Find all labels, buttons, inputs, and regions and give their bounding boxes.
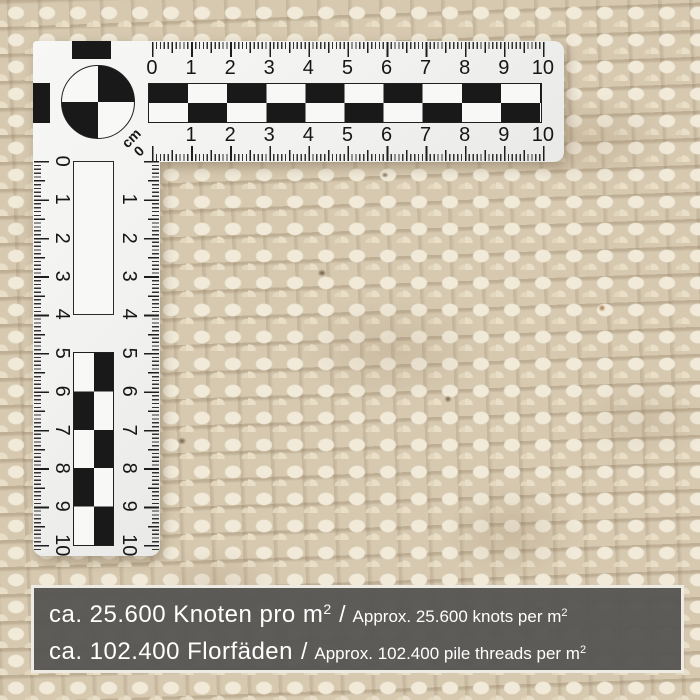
scale-number: 9 xyxy=(484,56,523,80)
scale-number: 6 xyxy=(367,123,406,147)
scale-number: 10 xyxy=(523,123,562,147)
carpet-photo: cm 0 0 1 2 3 4 5 6 7 8 9 10 1 2 3 4 5 6 xyxy=(0,0,700,700)
scale-number: 3 xyxy=(250,56,289,80)
knots-de-text: ca. 25.600 Knoten pro m xyxy=(49,601,323,628)
horizontal-scale-numbers-top: 0 1 2 3 4 5 6 7 8 9 10 xyxy=(132,56,562,80)
scale-number: 6 xyxy=(367,56,406,80)
scale-number: 8 xyxy=(445,123,484,147)
corner-checker-square xyxy=(33,83,50,123)
blank-scale-rectangle xyxy=(73,161,114,315)
scale-number: 4 xyxy=(289,123,328,147)
scale-number: 3 xyxy=(250,123,289,147)
scale-number: 7 xyxy=(406,56,445,80)
pile-en-text: Approx. 102.400 pile threads per m xyxy=(314,644,580,663)
corner-checker-square xyxy=(72,41,111,59)
registration-target-icon xyxy=(61,65,135,139)
slash-separator: / xyxy=(301,638,307,664)
scale-number: 1 xyxy=(172,123,211,147)
checkerboard-scale-horizontal xyxy=(148,83,542,123)
scale-number: 5 xyxy=(328,56,367,80)
superscript-2: 2 xyxy=(580,644,586,656)
scale-number: 1 xyxy=(171,56,210,80)
checkerboard-scale-vertical xyxy=(73,352,114,546)
vertical-scale-numbers-left: 0 1 2 3 4 5 6 7 8 9 10 xyxy=(49,142,75,564)
knots-en-text: Approx. 25.600 knots per m xyxy=(353,607,562,626)
spec-banner: ca. 25.600 Knoten pro m2/Approx. 25.600 … xyxy=(31,585,684,673)
knot-density-line: ca. 25.600 Knoten pro m2/Approx. 25.600 … xyxy=(49,591,681,627)
vertical-scale-numbers-right: 1 2 3 4 5 6 7 8 9 10 xyxy=(116,180,142,564)
slash-separator: / xyxy=(339,601,345,627)
scale-number: 0 xyxy=(132,56,171,80)
scale-number: 9 xyxy=(484,123,523,147)
scale-number: 8 xyxy=(445,56,484,80)
scale-number: 5 xyxy=(328,123,367,147)
superscript-2: 2 xyxy=(561,607,567,619)
scale-number: 10 xyxy=(523,56,562,80)
pile-de-text: ca. 102.400 Florfäden xyxy=(49,638,293,665)
scale-number: 4 xyxy=(289,56,328,80)
horizontal-ticks-bottom xyxy=(152,146,547,161)
pile-thread-line: ca. 102.400 Florfäden/Approx. 102.400 pi… xyxy=(49,632,681,668)
scale-number: 2 xyxy=(211,123,250,147)
scale-number: 7 xyxy=(406,123,445,147)
scale-number: 2 xyxy=(211,56,250,80)
horizontal-scale-numbers-bottom: 1 2 3 4 5 6 7 8 9 10 xyxy=(172,123,563,147)
superscript-2: 2 xyxy=(323,601,331,617)
vertical-ticks-right xyxy=(143,161,159,551)
